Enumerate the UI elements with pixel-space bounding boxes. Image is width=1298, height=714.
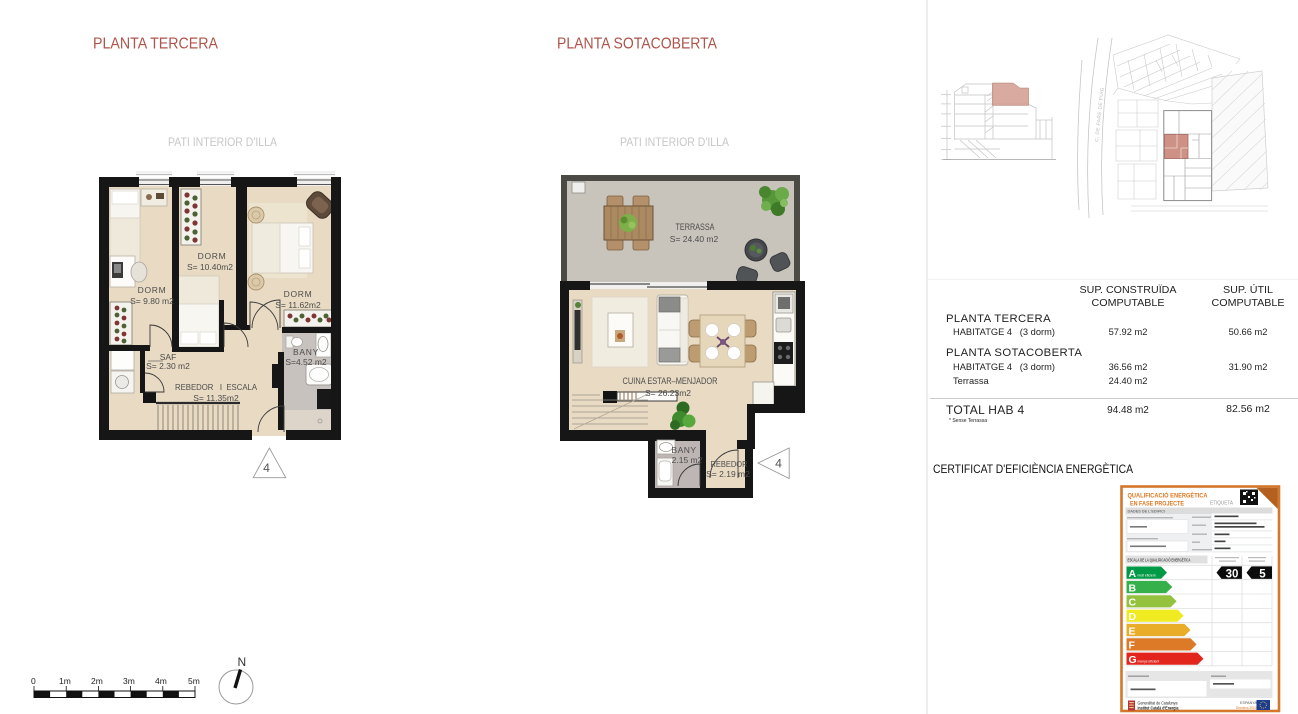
svg-text:* Sense Terrassa: * Sense Terrassa xyxy=(949,418,987,424)
svg-text:Institut Català d'Energia: Institut Català d'Energia xyxy=(1138,706,1179,711)
svg-text:DORM: DORM xyxy=(284,289,313,299)
svg-text:N: N xyxy=(238,655,247,669)
svg-text:QUALIFICACIÓ ENERGÈTICA: QUALIFICACIÓ ENERGÈTICA xyxy=(1128,491,1208,500)
svg-text:TERRASSA: TERRASSA xyxy=(676,222,715,232)
svg-text:SUP. CONSTRUÏDA: SUP. CONSTRUÏDA xyxy=(1080,284,1177,296)
svg-text:PLANTA TERCERA: PLANTA TERCERA xyxy=(946,313,1051,325)
svg-text:G: G xyxy=(1129,654,1137,666)
svg-text:DADES DE L'EDIFICI: DADES DE L'EDIFICI xyxy=(1128,510,1165,514)
svg-text:36.56 m2: 36.56 m2 xyxy=(1109,362,1148,372)
svg-text:4: 4 xyxy=(263,461,270,475)
svg-text:CERTIFICAT D'EFICIÈNCIA ENERGÈ: CERTIFICAT D'EFICIÈNCIA ENERGÈTICA xyxy=(933,461,1134,476)
svg-text:A: A xyxy=(1129,568,1137,580)
svg-text:S= 26.23m2: S= 26.23m2 xyxy=(645,388,691,398)
svg-text:ESPANYA: ESPANYA xyxy=(1240,700,1257,705)
svg-text:PLANTA SOTACOBERTA: PLANTA SOTACOBERTA xyxy=(557,36,718,53)
svg-text:Terrassa: Terrassa xyxy=(953,376,989,386)
svg-text:PATI INTERIOR D'ILLA: PATI INTERIOR D'ILLA xyxy=(620,137,729,149)
svg-text:S= 2.30 m2: S= 2.30 m2 xyxy=(146,361,190,371)
svg-text:REBEDOR I ESCALA: REBEDOR I ESCALA xyxy=(175,382,257,392)
svg-text:S= 9.80 m2: S= 9.80 m2 xyxy=(130,296,174,306)
svg-text:menys eficient: menys eficient xyxy=(1138,660,1160,664)
svg-text:57.92 m2: 57.92 m2 xyxy=(1109,327,1148,337)
svg-text:BANY: BANY xyxy=(671,445,696,455)
svg-text:1m: 1m xyxy=(59,676,71,686)
svg-text:5m: 5m xyxy=(188,676,200,686)
svg-text:S= 24.40 m2: S= 24.40 m2 xyxy=(670,234,719,244)
svg-text:COMPUTABLE: COMPUTABLE xyxy=(1212,298,1285,309)
svg-text:BANY: BANY xyxy=(293,347,319,357)
svg-text:ETIQUETA: ETIQUETA xyxy=(1210,501,1233,507)
svg-text:EN FASE PROJECTE: EN FASE PROJECTE xyxy=(1130,501,1185,508)
svg-text:D: D xyxy=(1129,611,1137,623)
svg-text:DORM: DORM xyxy=(138,285,167,295)
svg-text:HABITATGE 4 (3 dorm): HABITATGE 4 (3 dorm) xyxy=(953,362,1055,372)
svg-text:2m: 2m xyxy=(91,676,103,686)
svg-text:ESCALA DE LA QUALIFICACIÓ ENER: ESCALA DE LA QUALIFICACIÓ ENERGÈTICA xyxy=(1128,558,1191,563)
svg-text:E: E xyxy=(1129,625,1136,637)
svg-text:4: 4 xyxy=(775,457,782,471)
svg-text:SUP. ÚTIL: SUP. ÚTIL xyxy=(1223,283,1273,296)
svg-text:S= 11.62m2: S= 11.62m2 xyxy=(275,300,321,310)
svg-text:molt eficient: molt eficient xyxy=(1138,574,1156,578)
svg-text:4m: 4m xyxy=(155,676,167,686)
svg-text:5: 5 xyxy=(1259,568,1266,580)
svg-text:2.15 m2: 2.15 m2 xyxy=(672,455,703,465)
svg-text:50.66 m2: 50.66 m2 xyxy=(1229,327,1268,337)
svg-text:B: B xyxy=(1129,582,1137,594)
svg-text:PLANTA TERCERA: PLANTA TERCERA xyxy=(93,36,219,53)
svg-text:30: 30 xyxy=(1226,568,1239,580)
svg-text:0: 0 xyxy=(31,676,36,686)
svg-text:HABITATGE 4 (3 dorm): HABITATGE 4 (3 dorm) xyxy=(953,327,1055,337)
svg-text:F: F xyxy=(1129,640,1136,652)
svg-text:94.48 m2: 94.48 m2 xyxy=(1107,405,1149,416)
svg-text:31.90 m2: 31.90 m2 xyxy=(1229,362,1268,372)
svg-text:3m: 3m xyxy=(123,676,135,686)
svg-text:C: C xyxy=(1129,597,1137,609)
svg-text:REBEDOR: REBEDOR xyxy=(711,459,748,469)
svg-text:C. DE PARE DE PUIG: C. DE PARE DE PUIG xyxy=(1094,87,1106,142)
svg-text:S= 2.19 m2: S= 2.19 m2 xyxy=(706,469,750,479)
svg-text:COMPUTABLE: COMPUTABLE xyxy=(1092,298,1165,309)
svg-text:TOTAL HAB 4: TOTAL HAB 4 xyxy=(946,403,1024,417)
svg-text:S= 10.40m2: S= 10.40m2 xyxy=(187,262,233,272)
svg-text:82.56 m2: 82.56 m2 xyxy=(1226,403,1270,415)
svg-text:PLANTA SOTACOBERTA: PLANTA SOTACOBERTA xyxy=(946,347,1082,359)
svg-text:DORM: DORM xyxy=(198,251,227,261)
svg-text:S= 11.35m2: S= 11.35m2 xyxy=(193,393,239,403)
svg-text:24.40 m2: 24.40 m2 xyxy=(1109,376,1148,386)
svg-text:CUINA ESTAR–MENJADOR: CUINA ESTAR–MENJADOR xyxy=(623,376,718,386)
svg-text:S=4.52 m2: S=4.52 m2 xyxy=(285,357,327,367)
svg-text:PATI INTERIOR D'ILLA: PATI INTERIOR D'ILLA xyxy=(168,137,277,149)
